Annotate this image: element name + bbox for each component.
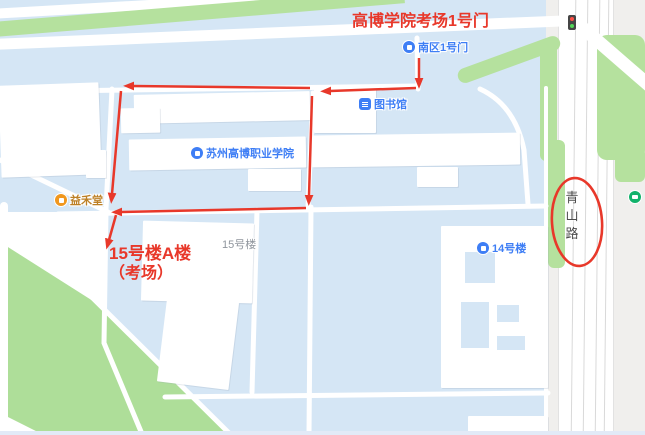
poi-label: 15号楼: [222, 236, 256, 252]
poi-label: 苏州高博职业学院: [206, 145, 294, 161]
poi-building-14[interactable]: 14号楼: [477, 240, 526, 256]
bus-stop-icon[interactable]: [629, 191, 641, 203]
poi-label: 南区1号门: [418, 39, 468, 55]
library-icon: [359, 98, 371, 110]
annotation-gate-title: 高博学院考场1号门: [352, 12, 489, 31]
building: [157, 294, 239, 390]
school-icon: [191, 147, 203, 159]
bottom-edge: [0, 431, 645, 435]
annotation-destination: 15号楼A楼 （考场）: [109, 244, 191, 284]
green-strip: [548, 140, 565, 268]
traffic-light-icon: [568, 15, 576, 30]
poi-south-gate-1[interactable]: 南区1号门: [403, 39, 468, 55]
building: [134, 91, 311, 124]
poi-college[interactable]: 苏州高博职业学院: [191, 145, 294, 161]
building: [86, 150, 106, 178]
poi-library[interactable]: 图书馆: [359, 96, 407, 112]
road-name-qingshan: 青 山 路: [564, 189, 580, 243]
green-area: [615, 148, 645, 182]
map-canvas[interactable]: 南区1号门 图书馆 苏州高博职业学院 益禾堂 15号楼 14号楼 青 山 路: [0, 0, 645, 435]
building: [417, 167, 458, 187]
green-area: [597, 35, 645, 160]
building: [121, 108, 160, 134]
poi-label: 益禾堂: [70, 192, 103, 208]
building: [248, 169, 301, 191]
poi-label: 图书馆: [374, 96, 407, 112]
poi-label: 14号楼: [492, 240, 526, 256]
building: [312, 133, 520, 168]
poi-milk-tea[interactable]: 益禾堂: [55, 192, 103, 208]
poi-building-15: 15号楼: [222, 236, 256, 252]
cup-icon: [55, 194, 67, 206]
building-icon: [477, 242, 489, 254]
gate-icon: [403, 41, 415, 53]
